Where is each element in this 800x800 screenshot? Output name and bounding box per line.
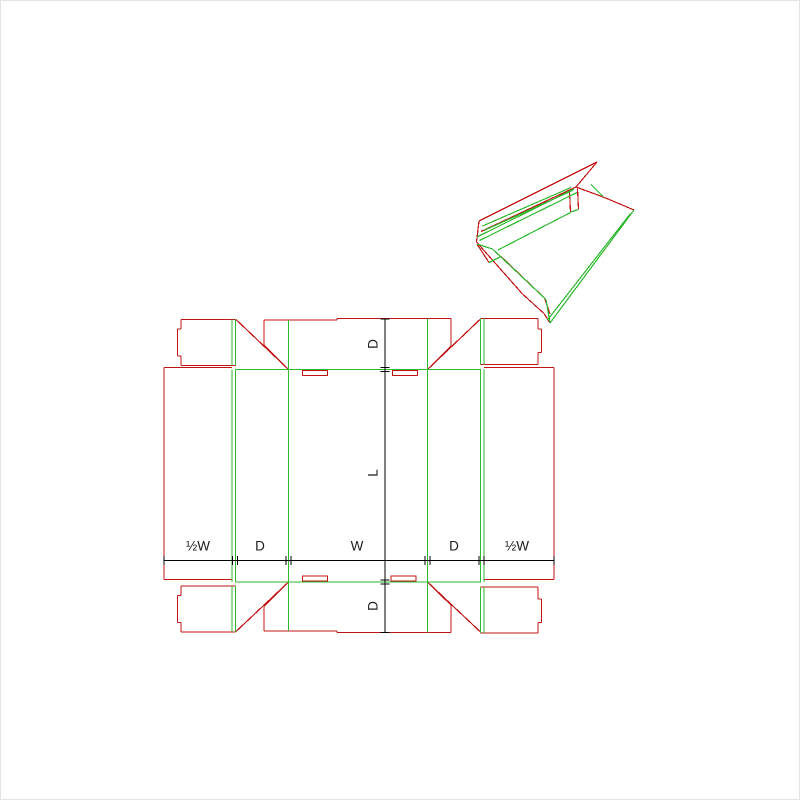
dimension-label: W xyxy=(351,539,364,553)
preview-fold-line xyxy=(548,214,631,321)
dimension-label: ½W xyxy=(186,539,210,553)
dimension-label: D xyxy=(366,601,380,611)
preview-cut-line xyxy=(570,191,571,212)
preview-cut-line xyxy=(576,162,597,187)
dimension-label: D xyxy=(255,539,265,553)
cut-line xyxy=(428,319,482,370)
preview-fold-line xyxy=(483,188,572,227)
preview-fold-line xyxy=(493,249,547,300)
preview-cut-line xyxy=(576,187,605,198)
dimension-label: D xyxy=(449,539,459,553)
preview-cut-line xyxy=(477,221,480,242)
preview-cut-line xyxy=(523,294,545,314)
slot-cutout xyxy=(303,576,328,581)
slot-cutout xyxy=(303,371,328,376)
dimension-label: D xyxy=(366,339,380,349)
preview-fold-line xyxy=(571,210,579,213)
dimension-label: L xyxy=(366,469,380,477)
dieline-screenshot: ½WDWD½WDLD xyxy=(0,0,800,800)
preview-cut-line xyxy=(605,198,635,211)
cut-line xyxy=(264,345,289,370)
dimension-label: ½W xyxy=(505,539,529,553)
slot-cutout xyxy=(393,371,418,376)
cut-line xyxy=(428,582,482,633)
preview-fold-line xyxy=(550,210,634,323)
dieline-drawing xyxy=(1,1,799,799)
preview-cut-line xyxy=(578,189,579,210)
slot-cutout xyxy=(391,576,416,581)
cut-line xyxy=(236,582,289,632)
